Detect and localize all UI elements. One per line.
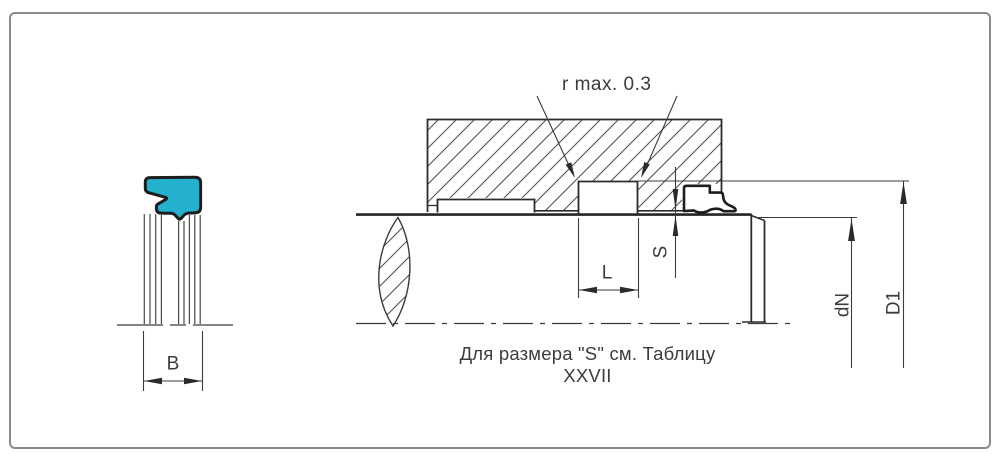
dimension-label-L: L	[602, 264, 613, 283]
wiper-seal-profile	[145, 177, 200, 219]
dimension-L	[579, 218, 639, 298]
seal-installation-diagram	[0, 0, 1000, 457]
arrowhead-up	[900, 182, 907, 204]
dimension-label-D1: D1	[885, 291, 904, 315]
radius-note: r max. 0.3	[562, 74, 651, 96]
seal-groove-cavity	[578, 181, 638, 213]
size-table-caption: Для размера "S" см. Таблицу XXVII	[435, 343, 740, 387]
dimension-label-B: B	[167, 355, 180, 374]
dimension-label-dN: dN	[834, 293, 853, 317]
arrowhead-right	[620, 287, 638, 293]
technical-drawing-page: r max. 0.3 B L S dN D1 Для размера "S" с…	[0, 0, 1000, 457]
shaft-break-lens	[379, 218, 410, 327]
arrowhead-left	[144, 378, 162, 384]
shaft-section	[356, 214, 796, 326]
arrowhead-up	[848, 219, 855, 241]
housing-hatching	[427, 119, 722, 211]
dimension-label-S: S	[652, 246, 671, 259]
arrowhead-left	[579, 287, 597, 293]
relief-notch	[427, 205, 437, 213]
arrowhead-right	[184, 378, 202, 384]
arrowhead-up	[673, 216, 679, 237]
seal-wall-lines	[144, 214, 200, 324]
